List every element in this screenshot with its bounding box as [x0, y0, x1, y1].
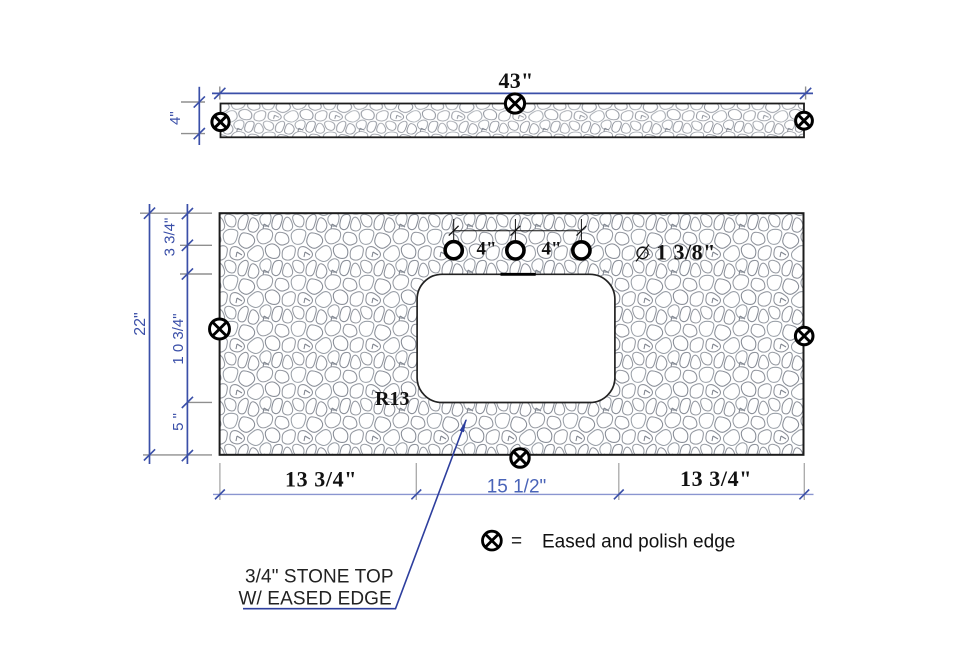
svg-text:4": 4" [167, 111, 184, 125]
svg-text:15 1/2": 15 1/2" [487, 477, 547, 498]
svg-text:43": 43" [498, 68, 533, 93]
svg-text:22": 22" [132, 312, 149, 335]
svg-text:=: = [511, 531, 522, 552]
svg-text:1 3/8": 1 3/8" [656, 240, 716, 265]
svg-text:3 3/4": 3 3/4" [162, 218, 179, 257]
svg-text:13 3/4": 13 3/4" [680, 466, 752, 491]
svg-text:4": 4" [476, 239, 496, 260]
svg-text:13 3/4": 13 3/4" [285, 467, 357, 492]
svg-text:1 0 3/4": 1 0 3/4" [170, 313, 187, 364]
svg-text:W/ EASED EDGE: W/ EASED EDGE [239, 589, 392, 610]
svg-text:4": 4" [541, 239, 561, 260]
svg-text:R13: R13 [375, 388, 409, 410]
svg-text:5 ": 5 " [170, 413, 187, 431]
svg-text:3/4" STONE TOP: 3/4" STONE TOP [245, 567, 394, 588]
svg-text:Eased and polish edge: Eased and polish edge [542, 532, 735, 553]
